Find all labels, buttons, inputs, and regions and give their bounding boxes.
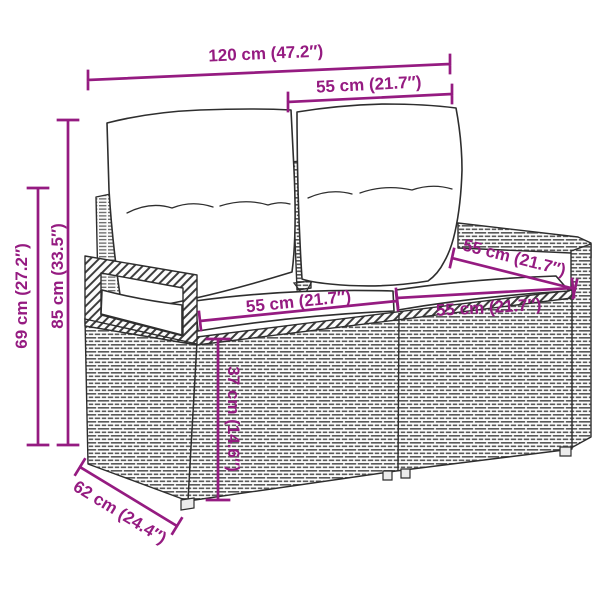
sofa-dimension-drawing: 120 cm (47.2″) 55 cm (21.7″) 85 cm (33.5… xyxy=(0,0,600,600)
dim-seat-height-label: 37 cm (14.6″) xyxy=(224,366,243,471)
right-side-panel xyxy=(571,244,591,448)
dim-total-height-label: 85 cm (33.5″) xyxy=(48,223,67,328)
base-module-seam xyxy=(398,313,399,470)
foot xyxy=(383,471,392,480)
back-cushion-right xyxy=(297,104,462,286)
dim-armrest-height: 69 cm (27.2″) xyxy=(12,188,48,445)
dim-overall-width-label: 120 cm (47.2″) xyxy=(208,42,324,66)
foot xyxy=(560,447,571,456)
dim-backrest-width-label: 55 cm (21.7″) xyxy=(316,72,422,96)
dim-total-height: 85 cm (33.5″) xyxy=(48,120,78,445)
base-left-side xyxy=(85,319,197,501)
base-front xyxy=(188,294,572,501)
foot xyxy=(181,498,194,510)
dim-armrest-height-label: 69 cm (27.2″) xyxy=(12,243,31,348)
foot xyxy=(401,469,410,478)
dimension-diagram: 120 cm (47.2″) 55 cm (21.7″) 85 cm (33.5… xyxy=(0,0,600,600)
